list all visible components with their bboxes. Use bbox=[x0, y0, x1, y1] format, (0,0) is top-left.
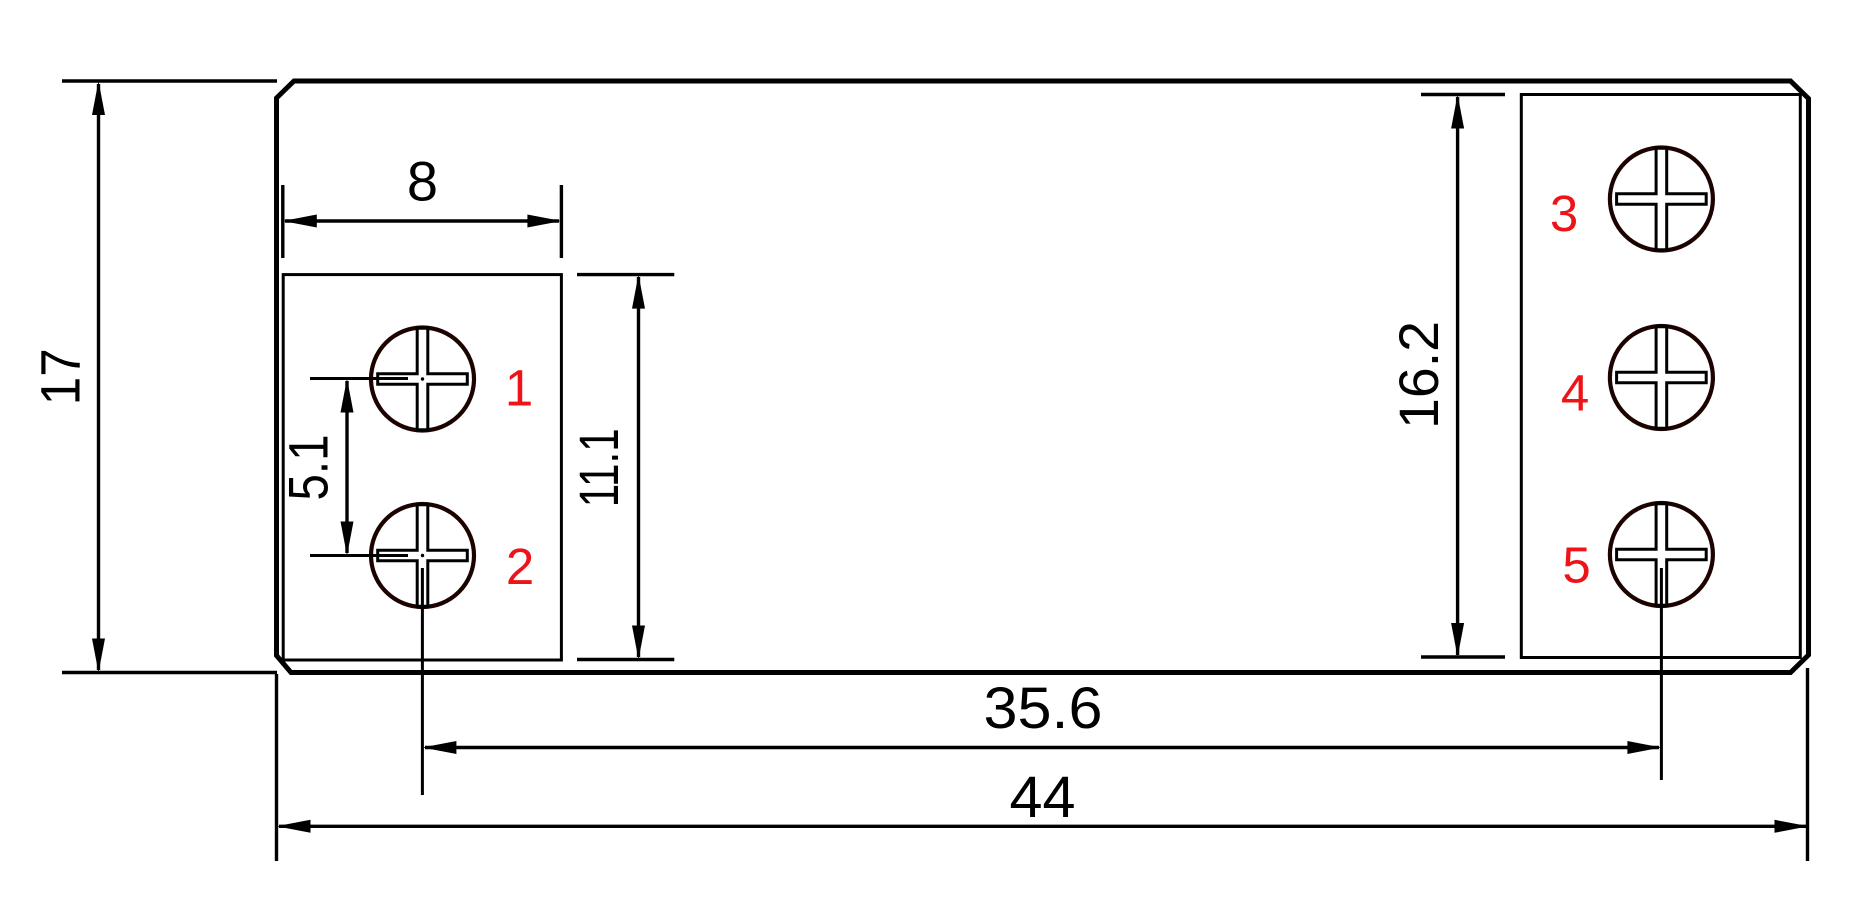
svg-text:2: 2 bbox=[506, 538, 534, 595]
svg-text:35.6: 35.6 bbox=[984, 676, 1103, 741]
svg-text:5.1: 5.1 bbox=[276, 435, 339, 501]
svg-text:1: 1 bbox=[505, 360, 533, 417]
svg-text:4: 4 bbox=[1561, 365, 1589, 422]
svg-text:11.1: 11.1 bbox=[567, 428, 630, 507]
svg-text:5: 5 bbox=[1562, 537, 1590, 594]
svg-text:8: 8 bbox=[407, 150, 438, 213]
svg-text:3: 3 bbox=[1550, 185, 1578, 242]
svg-text:17: 17 bbox=[29, 348, 92, 405]
svg-text:16.2: 16.2 bbox=[1387, 321, 1450, 429]
svg-text:44: 44 bbox=[1010, 765, 1076, 830]
